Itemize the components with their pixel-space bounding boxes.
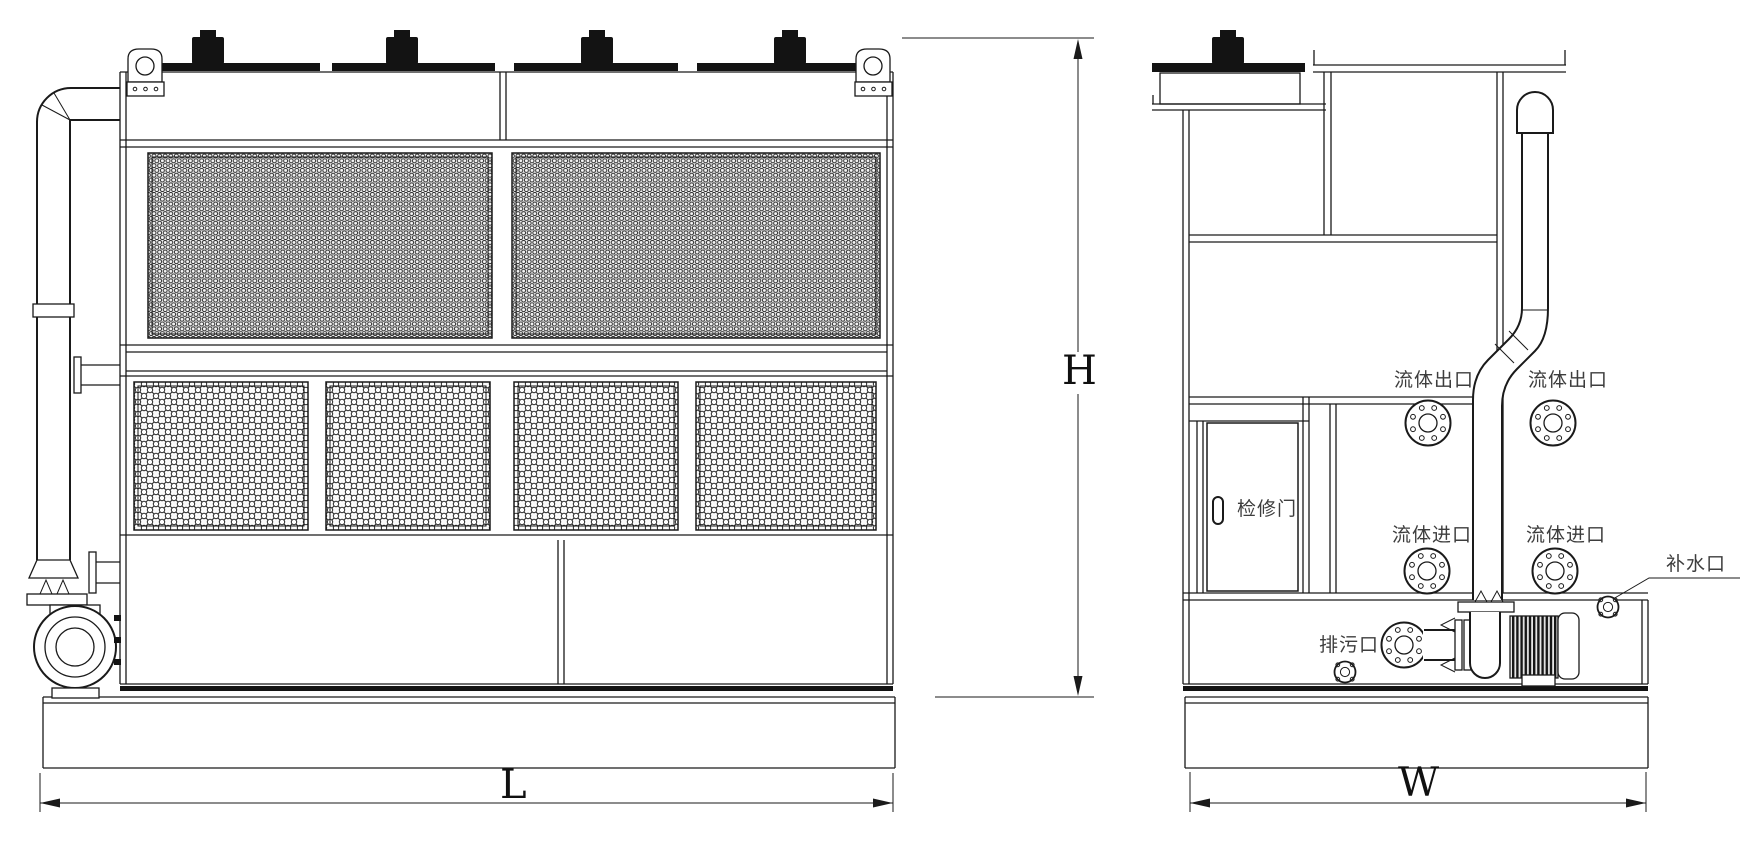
dim-label-W: W: [1398, 760, 1439, 806]
makeup-water-label: 补水口: [1666, 549, 1726, 576]
mid-band: [120, 345, 893, 376]
lower-louver-mesh-1: [134, 382, 308, 530]
fluid-outlet-flange-2: [1531, 401, 1576, 446]
pipe-cap: [1517, 92, 1553, 133]
suction-flange: [1382, 623, 1427, 668]
lifting-lug-left: [127, 49, 164, 96]
drain-port-flange: [1335, 662, 1356, 683]
circulation-pump-side: [1382, 612, 1580, 686]
access-door-label: 检修门: [1237, 494, 1297, 521]
upper-fill-mesh-left: [148, 153, 492, 338]
fan-cowl: [1160, 73, 1300, 104]
riser-pipe-front: [27, 88, 120, 605]
fluid-outlet-flange-1: [1406, 401, 1451, 446]
drawing-linework: [0, 0, 1741, 843]
dimension-length-L: [40, 773, 893, 812]
technical-drawing-cooling-tower: 流体出口 流体出口 流体进口 流体进口 检修门 排污口 补水口 H L W: [0, 0, 1741, 843]
upper-fill-mesh-right: [512, 153, 880, 338]
fan-motor-2: [386, 30, 418, 64]
lower-louver-mesh-2: [326, 382, 490, 530]
plenum-divider: [1324, 72, 1331, 235]
dim-label-H: H: [1062, 348, 1097, 394]
fluid-inlet-label-1: 流体进口: [1392, 520, 1472, 547]
fan-motor-icons: [192, 30, 806, 64]
fluid-outlet-label-1: 流体出口: [1394, 365, 1474, 392]
upper-joint-band: [1189, 235, 1497, 242]
lifting-lug-right: [855, 49, 892, 96]
top-band: [120, 72, 893, 147]
basin-bottom-edge-side: [1183, 686, 1648, 691]
pipe-reducer: [29, 560, 78, 578]
dim-label-L: L: [500, 762, 527, 808]
lower-louver-mesh-3: [514, 382, 678, 530]
circulation-pump-front: [34, 605, 116, 698]
wall-stub-flange-lower: [89, 552, 120, 593]
lower-louver-mesh-4: [696, 382, 876, 530]
makeup-water-flange: [1598, 597, 1619, 618]
pump-motor: [1510, 616, 1558, 678]
pump-flange-plate: [27, 594, 87, 605]
fluid-inlet-flange-2: [1533, 549, 1578, 594]
fan-motor-side: [1212, 30, 1244, 64]
side-view: [1152, 30, 1740, 768]
drain-port-label: 排污口: [1319, 630, 1379, 657]
fan-motor-4: [774, 30, 806, 64]
base-plinth-front: [43, 697, 895, 768]
basin-band: [120, 535, 893, 684]
pump-casing: [1470, 612, 1500, 678]
plenum-roof-lip: [1313, 50, 1566, 72]
fan-louvre-side: [1152, 63, 1305, 72]
basin-bottom-edge: [120, 686, 893, 691]
front-view: [27, 30, 895, 768]
base-plinth-side: [1185, 697, 1648, 768]
wall-stub-flange-upper: [74, 357, 120, 393]
fluid-inlet-flange-1: [1405, 549, 1450, 594]
fan-deck-louvres: [143, 63, 858, 71]
mid-joint-band: [1189, 397, 1497, 404]
fluid-outlet-label-2: 流体出口: [1528, 365, 1608, 392]
pipe-coupling: [33, 304, 74, 317]
makeup-leader-line: [1613, 578, 1740, 599]
fan-motor-1: [192, 30, 224, 64]
fluid-inlet-label-2: 流体进口: [1526, 520, 1606, 547]
fan-motor-3: [581, 30, 613, 64]
